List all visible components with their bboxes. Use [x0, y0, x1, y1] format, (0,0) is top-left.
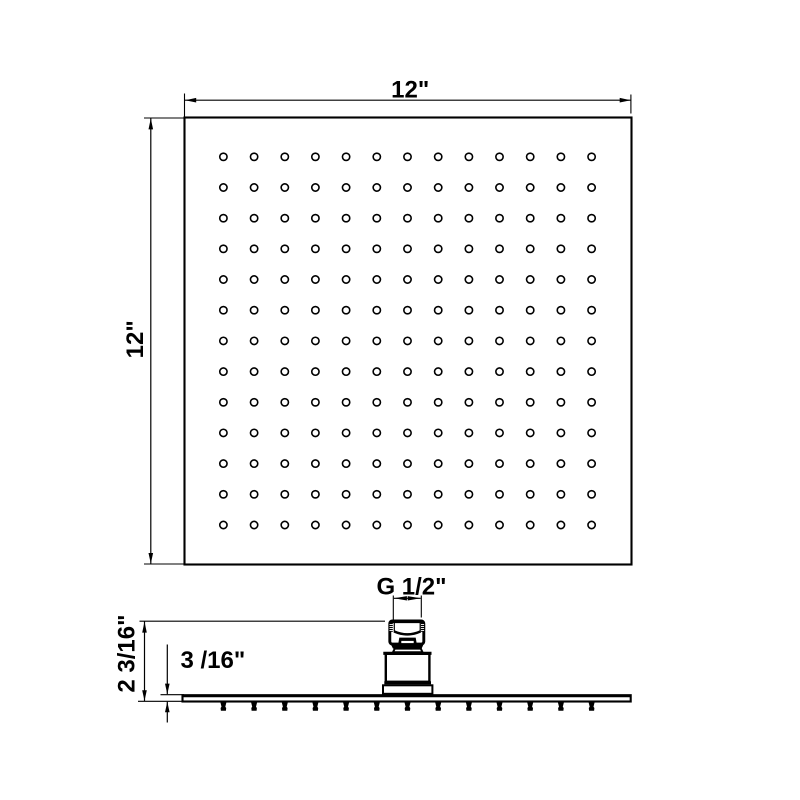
svg-text:3 /16": 3 /16": [181, 647, 246, 674]
svg-text:12": 12": [391, 77, 429, 104]
svg-text:2 3/16": 2 3/16": [114, 615, 141, 693]
svg-text:G 1/2": G 1/2": [376, 573, 446, 600]
svg-text:12": 12": [122, 320, 149, 358]
